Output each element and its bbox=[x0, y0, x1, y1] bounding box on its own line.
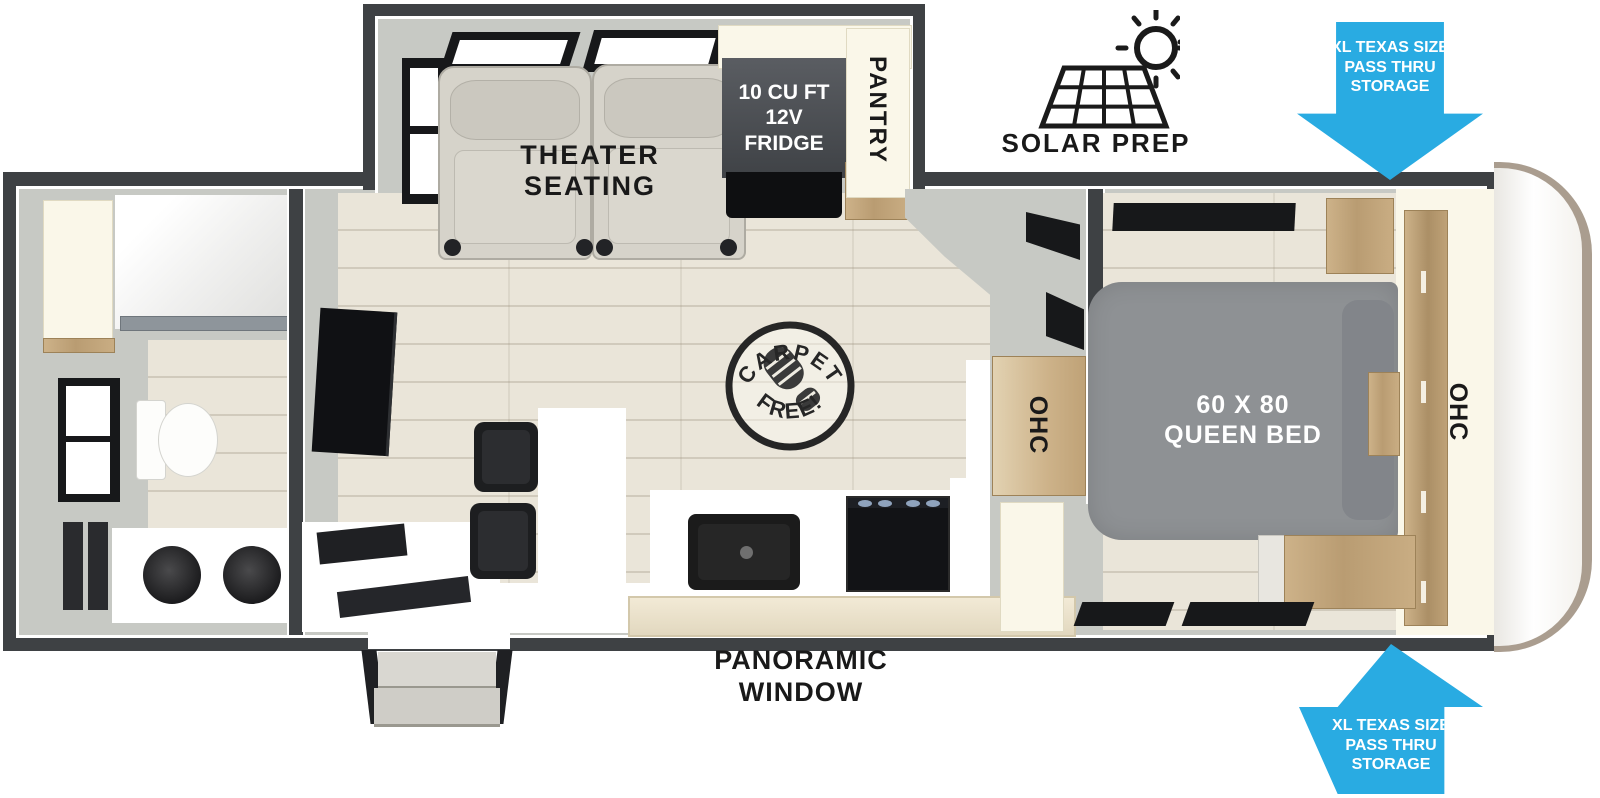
panoramic-window-label: PANORAMIC WINDOW bbox=[658, 644, 944, 709]
seat-foot bbox=[720, 239, 737, 256]
pantry-label: PANTRY bbox=[857, 40, 897, 180]
fridge-door bbox=[726, 172, 842, 218]
solar-panel-icon bbox=[1042, 68, 1166, 126]
vanity-sink-left bbox=[143, 546, 201, 604]
bathroom-window bbox=[58, 378, 120, 502]
queen-bed-label: 60 X 80 QUEEN BED bbox=[1138, 390, 1348, 450]
dining-chair bbox=[470, 503, 536, 579]
bathroom-cabinet-shelf bbox=[43, 338, 115, 353]
shower-door-track bbox=[120, 316, 289, 331]
seat-foot bbox=[596, 239, 613, 256]
entry-steps bbox=[366, 648, 508, 730]
storage-arrow-top-label: XL TEXAS SIZEPASS THRUSTORAGE bbox=[1297, 38, 1483, 97]
kitchen-sink bbox=[688, 514, 800, 590]
bedroom-dresser bbox=[1284, 535, 1416, 609]
bedroom-window-bottom-left bbox=[1074, 602, 1175, 626]
solar-prep-label: SOLAR PREP bbox=[980, 128, 1212, 159]
storage-arrow-bottom: XL TEXAS SIZEPASS THRUSTORAGE bbox=[1299, 644, 1483, 794]
bedroom-window-bottom-right bbox=[1182, 602, 1315, 626]
bedroom-overhead-cabinet bbox=[1326, 198, 1394, 274]
shower bbox=[115, 195, 287, 329]
entry-door-opening bbox=[368, 629, 510, 649]
linen-panel-right bbox=[88, 522, 108, 610]
fridge-label: 10 CU FT 12V FRIDGE bbox=[722, 58, 846, 178]
toilet-bowl bbox=[158, 403, 218, 477]
carpet-free-badge: CARPET FREE! bbox=[720, 316, 860, 456]
vanity-sink-right bbox=[223, 546, 281, 604]
hallway-cabinet bbox=[1000, 502, 1064, 632]
tv bbox=[312, 308, 398, 456]
ohc-kitchen-label: OHC bbox=[1018, 380, 1058, 470]
bedroom-window-top bbox=[1112, 203, 1295, 231]
ohc-front-label: OHC bbox=[1438, 367, 1478, 457]
rv-floorplan: THEATER SEATING 10 CU FT 12V FRIDGE PANT… bbox=[0, 0, 1600, 798]
linen-panel-left bbox=[63, 522, 83, 610]
seat-foot bbox=[444, 239, 461, 256]
dining-chair bbox=[474, 422, 538, 492]
bedside-shelf bbox=[1368, 372, 1400, 456]
seat-foot bbox=[576, 239, 593, 256]
bathroom-cabinet bbox=[43, 200, 113, 342]
dining-table bbox=[538, 408, 626, 600]
stove bbox=[846, 496, 950, 592]
storage-arrow-top: XL TEXAS SIZEPASS THRUSTORAGE bbox=[1297, 22, 1483, 180]
ohc-cabinet-side bbox=[966, 360, 990, 492]
theater-seating-label: THEATER SEATING bbox=[448, 140, 732, 202]
solar-prep-icon bbox=[1030, 10, 1180, 132]
storage-arrow-bottom-label: XL TEXAS SIZEPASS THRUSTORAGE bbox=[1299, 716, 1483, 775]
front-cap bbox=[1494, 168, 1582, 646]
